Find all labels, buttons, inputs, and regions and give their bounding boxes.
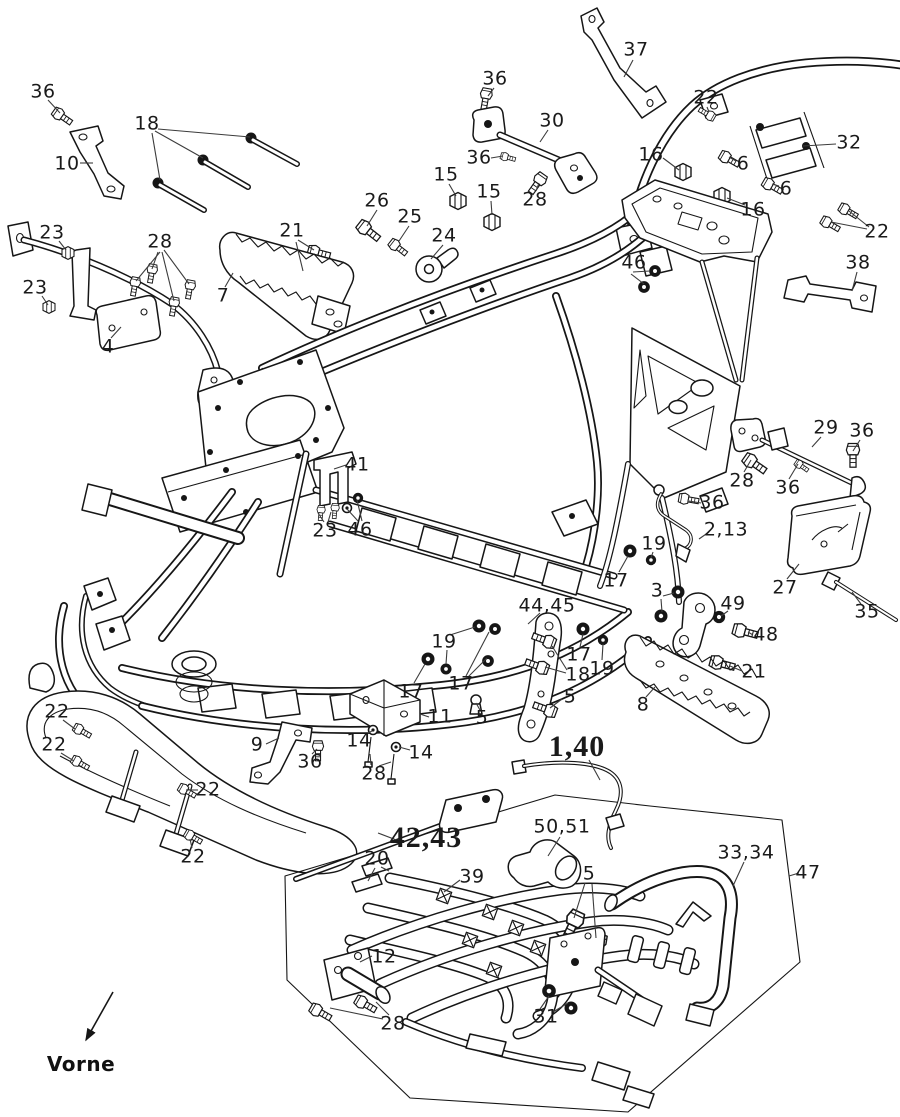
leader-lines xyxy=(0,0,900,1117)
leader-line xyxy=(318,513,324,522)
leader-line xyxy=(444,880,460,892)
leader-line xyxy=(831,222,867,229)
leader-line xyxy=(552,646,567,670)
leader-line xyxy=(466,632,489,676)
leader-line xyxy=(550,699,562,708)
leader-line xyxy=(266,738,279,744)
leader-line xyxy=(553,1003,568,1012)
leader-line xyxy=(420,714,429,717)
leader-line xyxy=(707,107,709,112)
leader-line xyxy=(849,211,869,227)
leader-line xyxy=(772,184,779,186)
leader-line xyxy=(491,156,503,158)
leader-line xyxy=(476,703,480,710)
leader-line xyxy=(548,837,560,856)
leader-line xyxy=(540,130,548,142)
leader-line xyxy=(852,272,857,291)
leader-line xyxy=(334,465,346,469)
leader-line xyxy=(296,242,303,271)
leader-line xyxy=(540,996,549,1009)
leader-line xyxy=(729,157,736,161)
parts-diagram-page: Vorne 3610182328212347262524151536303628… xyxy=(0,0,900,1117)
leader-line xyxy=(155,131,203,158)
leader-line xyxy=(661,599,662,612)
leader-line xyxy=(381,867,389,871)
leader-line xyxy=(190,839,192,848)
leader-line xyxy=(63,720,75,729)
leader-line xyxy=(162,252,174,301)
leader-line xyxy=(727,198,745,205)
leader-line xyxy=(624,60,633,77)
leader-line xyxy=(450,627,475,635)
leader-line xyxy=(592,884,596,938)
leader-line xyxy=(646,687,655,697)
leader-line xyxy=(42,296,48,305)
leader-line xyxy=(580,634,583,647)
leader-line xyxy=(61,753,74,761)
leader-line xyxy=(368,868,375,881)
leader-line xyxy=(528,613,540,624)
leader-line xyxy=(414,664,425,683)
leader-line xyxy=(376,1002,389,1015)
leader-line xyxy=(602,644,603,660)
leader-line xyxy=(663,593,674,596)
leader-line xyxy=(748,632,753,635)
leader-line xyxy=(689,501,701,503)
leader-line xyxy=(111,327,121,338)
leader-line xyxy=(446,650,447,664)
leader-line xyxy=(431,245,443,259)
leader-line xyxy=(225,273,233,287)
leader-line xyxy=(164,250,189,284)
leader-line xyxy=(733,862,744,886)
leader-line xyxy=(330,1008,383,1019)
leader-line xyxy=(536,183,539,191)
leader-line xyxy=(399,747,410,750)
leader-line xyxy=(545,667,566,673)
leader-line xyxy=(312,749,317,754)
leader-line xyxy=(812,437,821,447)
leader-line xyxy=(730,666,742,671)
leader-line xyxy=(367,210,377,226)
leader-line xyxy=(633,271,650,272)
leader-line xyxy=(158,129,250,137)
leader-line xyxy=(48,100,60,113)
leader-line xyxy=(379,762,391,766)
leader-line xyxy=(663,158,679,170)
leader-line xyxy=(360,956,372,962)
leader-line xyxy=(491,201,492,215)
leader-line xyxy=(803,144,836,146)
leader-line xyxy=(378,833,399,841)
leader-line xyxy=(449,184,456,196)
leader-line xyxy=(59,241,66,250)
leader-line xyxy=(328,512,331,522)
leader-line xyxy=(399,226,409,241)
leader-line xyxy=(366,731,372,734)
leader-line xyxy=(789,464,798,479)
leader-line xyxy=(589,760,600,780)
leader-line xyxy=(651,552,653,558)
leader-line xyxy=(488,88,494,96)
leader-line xyxy=(370,754,371,765)
leader-line xyxy=(721,611,728,616)
leader-line xyxy=(699,532,709,539)
leader-line xyxy=(631,274,644,284)
leader-line xyxy=(619,556,628,572)
leader-line xyxy=(789,873,799,876)
leader-line xyxy=(347,509,358,521)
leader-line xyxy=(853,440,860,451)
leader-line xyxy=(298,240,314,250)
leader-line xyxy=(357,500,362,521)
leader-line xyxy=(852,592,861,604)
leader-line xyxy=(744,460,751,472)
leader-line xyxy=(152,133,160,180)
leader-line xyxy=(787,564,799,579)
leader-line xyxy=(574,883,585,918)
